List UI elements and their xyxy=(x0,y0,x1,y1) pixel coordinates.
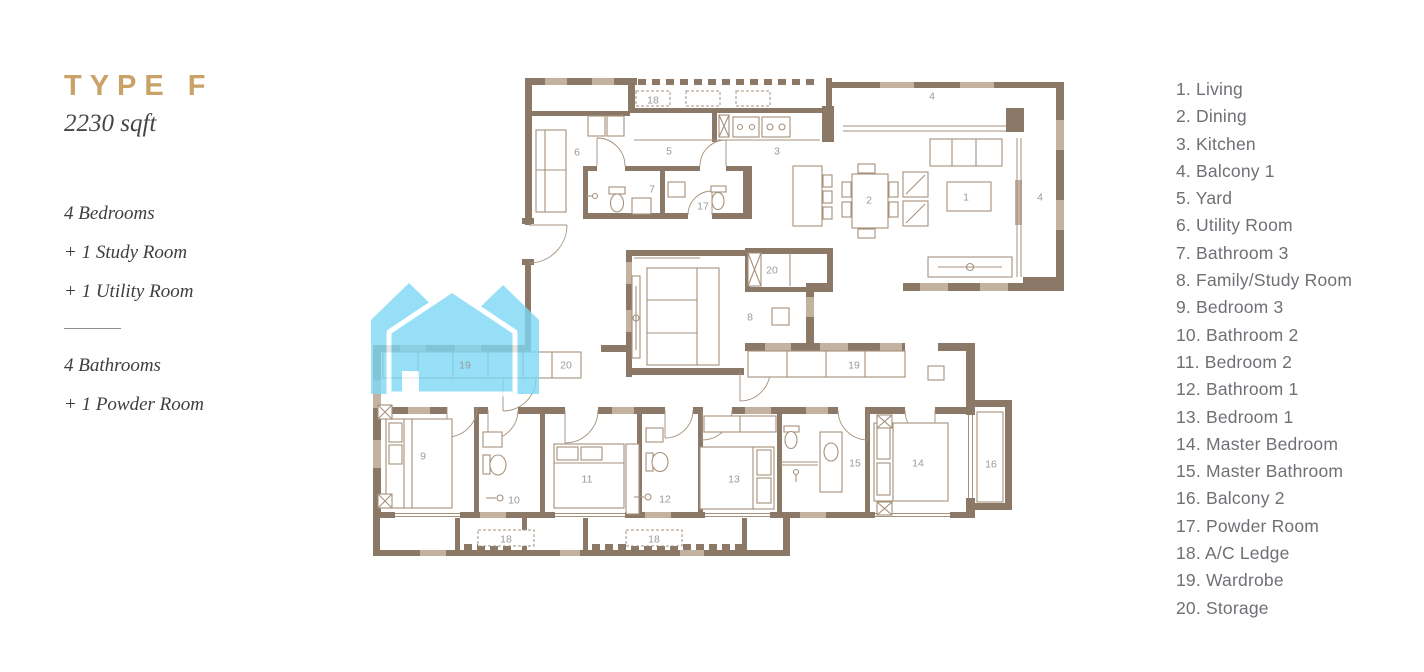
room-number-label: 20 xyxy=(560,360,572,372)
legend-item: 17. Powder Room xyxy=(1176,513,1352,540)
legend-item: 19. Wardrobe xyxy=(1176,567,1352,594)
unit-area: 2230 sqft xyxy=(64,110,156,138)
feature-item: 4 Bathrooms xyxy=(64,356,204,375)
legend-item: 2. Dining xyxy=(1176,103,1352,130)
room-number-label: 12 xyxy=(659,494,671,506)
room-number-label: 18 xyxy=(647,95,659,107)
title-panel: TYPE F 2230 sqft 4 Bedrooms+ 1 Study Roo… xyxy=(0,0,330,672)
room-number-label: 19 xyxy=(848,360,860,372)
room-number-label: 20 xyxy=(766,265,778,277)
room-number-label: 5 xyxy=(666,146,672,158)
room-number-label: 3 xyxy=(774,146,780,158)
room-number-label: 8 xyxy=(747,312,753,324)
legend-item: 4. Balcony 1 xyxy=(1176,158,1352,185)
legend-item: 1. Living xyxy=(1176,76,1352,103)
legend-item: 3. Kitchen xyxy=(1176,131,1352,158)
legend-item: 13. Bedroom 1 xyxy=(1176,404,1352,431)
legend-item: 6. Utility Room xyxy=(1176,212,1352,239)
legend-item: 5. Yard xyxy=(1176,185,1352,212)
room-legend: 1. Living2. Dining3. Kitchen4. Balcony 1… xyxy=(1176,76,1352,622)
room-number-label: 6 xyxy=(574,147,580,159)
room-number-label: 14 xyxy=(912,458,924,470)
floor-plan: 1234456789101112131415161718181819192020 xyxy=(360,58,1080,570)
legend-item: 16. Balcony 2 xyxy=(1176,485,1352,512)
legend-item: 7. Bathroom 3 xyxy=(1176,240,1352,267)
legend-item: 11. Bedroom 2 xyxy=(1176,349,1352,376)
room-number-label: 15 xyxy=(849,458,861,470)
room-number-label: 11 xyxy=(582,474,593,486)
legend-item: 14. Master Bedroom xyxy=(1176,431,1352,458)
legend-item: 15. Master Bathroom xyxy=(1176,458,1352,485)
room-number-label: 19 xyxy=(459,360,471,372)
room-number-label: 2 xyxy=(866,195,872,207)
room-number-label: 4 xyxy=(929,91,935,103)
room-number-label: 13 xyxy=(728,474,740,486)
room-number-label: 18 xyxy=(500,534,512,546)
room-number-label: 7 xyxy=(649,184,655,196)
room-number-label: 16 xyxy=(985,459,997,471)
legend-item: 18. A/C Ledge xyxy=(1176,540,1352,567)
features-list-bottom: 4 Bathrooms+ 1 Powder Room xyxy=(64,356,204,434)
room-number-label: 17 xyxy=(697,201,709,213)
features-list-top: 4 Bedrooms+ 1 Study Room+ 1 Utility Room xyxy=(64,204,193,321)
feature-item: 4 Bedrooms xyxy=(64,204,193,223)
unit-type-title: TYPE F xyxy=(64,70,214,103)
room-number-label: 9 xyxy=(420,451,426,463)
legend-item: 20. Storage xyxy=(1176,595,1352,622)
legend-item: 10. Bathroom 2 xyxy=(1176,322,1352,349)
feature-item: + 1 Powder Room xyxy=(64,395,204,414)
legend-item: 9. Bedroom 3 xyxy=(1176,294,1352,321)
room-number-label: 10 xyxy=(508,495,520,507)
room-number-label: 4 xyxy=(1037,192,1043,204)
legend-item: 12. Bathroom 1 xyxy=(1176,376,1352,403)
houses-watermark-logo xyxy=(371,283,539,394)
room-number-label: 1 xyxy=(963,192,969,204)
legend-item: 8. Family/Study Room xyxy=(1176,267,1352,294)
feature-item: + 1 Utility Room xyxy=(64,282,193,301)
room-number-label: 18 xyxy=(648,534,660,546)
features-divider xyxy=(64,328,121,329)
feature-item: + 1 Study Room xyxy=(64,243,193,262)
